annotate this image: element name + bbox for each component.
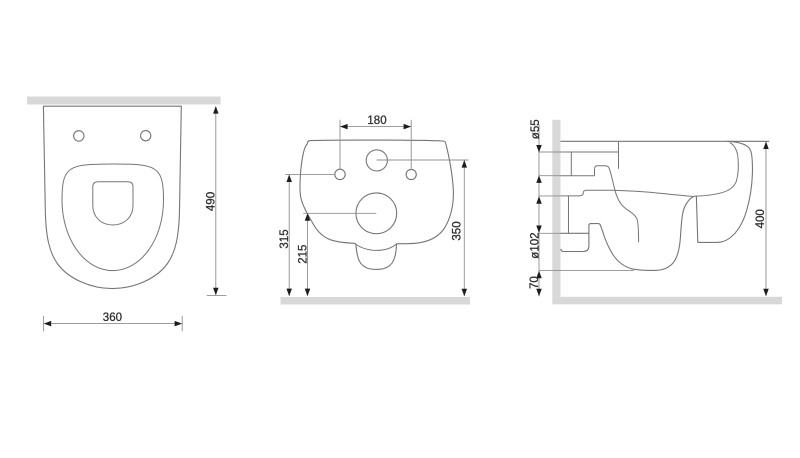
svg-text:360: 360 xyxy=(103,312,122,324)
svg-text:215: 215 xyxy=(297,245,309,264)
svg-text:ø55: ø55 xyxy=(530,119,542,139)
svg-text:70: 70 xyxy=(529,276,541,289)
svg-text:ø102: ø102 xyxy=(529,232,541,258)
svg-text:490: 490 xyxy=(206,192,218,211)
svg-text:315: 315 xyxy=(279,229,291,248)
svg-text:180: 180 xyxy=(367,115,386,127)
svg-text:400: 400 xyxy=(755,209,767,228)
svg-text:350: 350 xyxy=(452,221,464,240)
